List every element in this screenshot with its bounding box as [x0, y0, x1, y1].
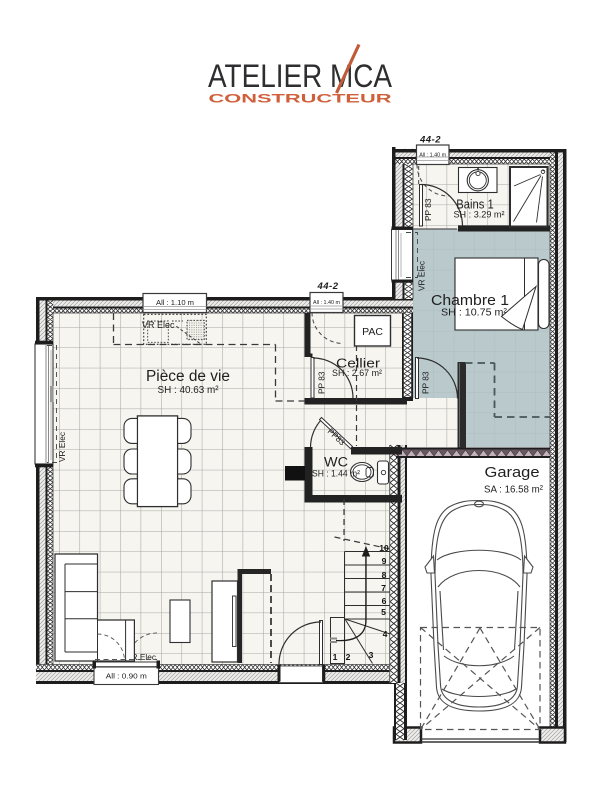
svg-text:SH : 3.29 m²: SH : 3.29 m²: [454, 210, 505, 221]
svg-text:10: 10: [379, 543, 389, 553]
svg-text:1: 1: [333, 652, 338, 662]
svg-text:44-2: 44-2: [419, 135, 441, 146]
svg-text:All : 1.40 m: All : 1.40 m: [313, 300, 340, 306]
svg-text:VR Elec: VR Elec: [57, 432, 67, 462]
svg-text:SH : 1.44 m²: SH : 1.44 m²: [312, 469, 360, 480]
svg-text:SH : 40.63 m²: SH : 40.63 m²: [158, 385, 220, 396]
svg-text:9: 9: [382, 556, 387, 566]
svg-text:SA : 16.58 m²: SA : 16.58 m²: [484, 485, 544, 496]
svg-text:PAC: PAC: [362, 326, 383, 338]
svg-text:All : 1.10 m: All : 1.10 m: [156, 298, 194, 307]
svg-text:All : 1.40 m: All : 1.40 m: [419, 153, 446, 159]
svg-text:8: 8: [382, 570, 387, 580]
svg-text:VR Elec: VR Elec: [142, 320, 175, 330]
svg-text:WC: WC: [324, 455, 348, 470]
svg-text:Pièce de vie: Pièce de vie: [146, 368, 230, 385]
svg-text:All : 0.90 m: All : 0.90 m: [106, 672, 147, 681]
svg-text:2: 2: [346, 652, 351, 662]
svg-text:PP 83: PP 83: [317, 371, 327, 394]
svg-text:CONSTRUCTEUR: CONSTRUCTEUR: [209, 92, 392, 106]
svg-text:3: 3: [369, 650, 374, 660]
svg-text:VR Elec: VR Elec: [417, 261, 427, 291]
svg-text:Garage: Garage: [485, 464, 540, 481]
svg-text:SH : 10.75 m²: SH : 10.75 m²: [441, 308, 508, 319]
svg-text:7: 7: [381, 583, 386, 593]
svg-text:ATELIER MCA: ATELIER MCA: [208, 58, 393, 94]
svg-text:6: 6: [382, 596, 387, 606]
svg-text:PP 83: PP 83: [423, 198, 433, 221]
svg-text:PP 83: PP 83: [421, 371, 431, 394]
svg-text:4: 4: [383, 629, 388, 639]
svg-text:44-2: 44-2: [316, 281, 338, 292]
svg-text:5: 5: [381, 607, 386, 617]
svg-text:SH : 2.67 m²: SH : 2.67 m²: [332, 368, 382, 379]
